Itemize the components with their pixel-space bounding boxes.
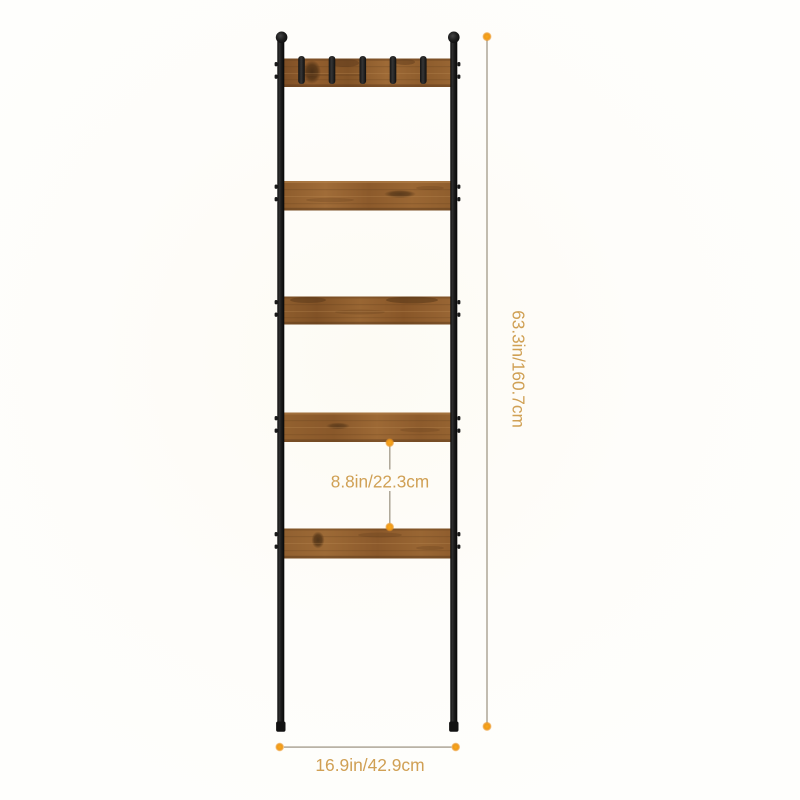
svg-text:8.8in/22.3cm: 8.8in/22.3cm — [331, 472, 429, 492]
svg-text:16.9in/42.9cm: 16.9in/42.9cm — [315, 755, 424, 775]
svg-text:63.3in/160.7cm: 63.3in/160.7cm — [509, 310, 529, 428]
